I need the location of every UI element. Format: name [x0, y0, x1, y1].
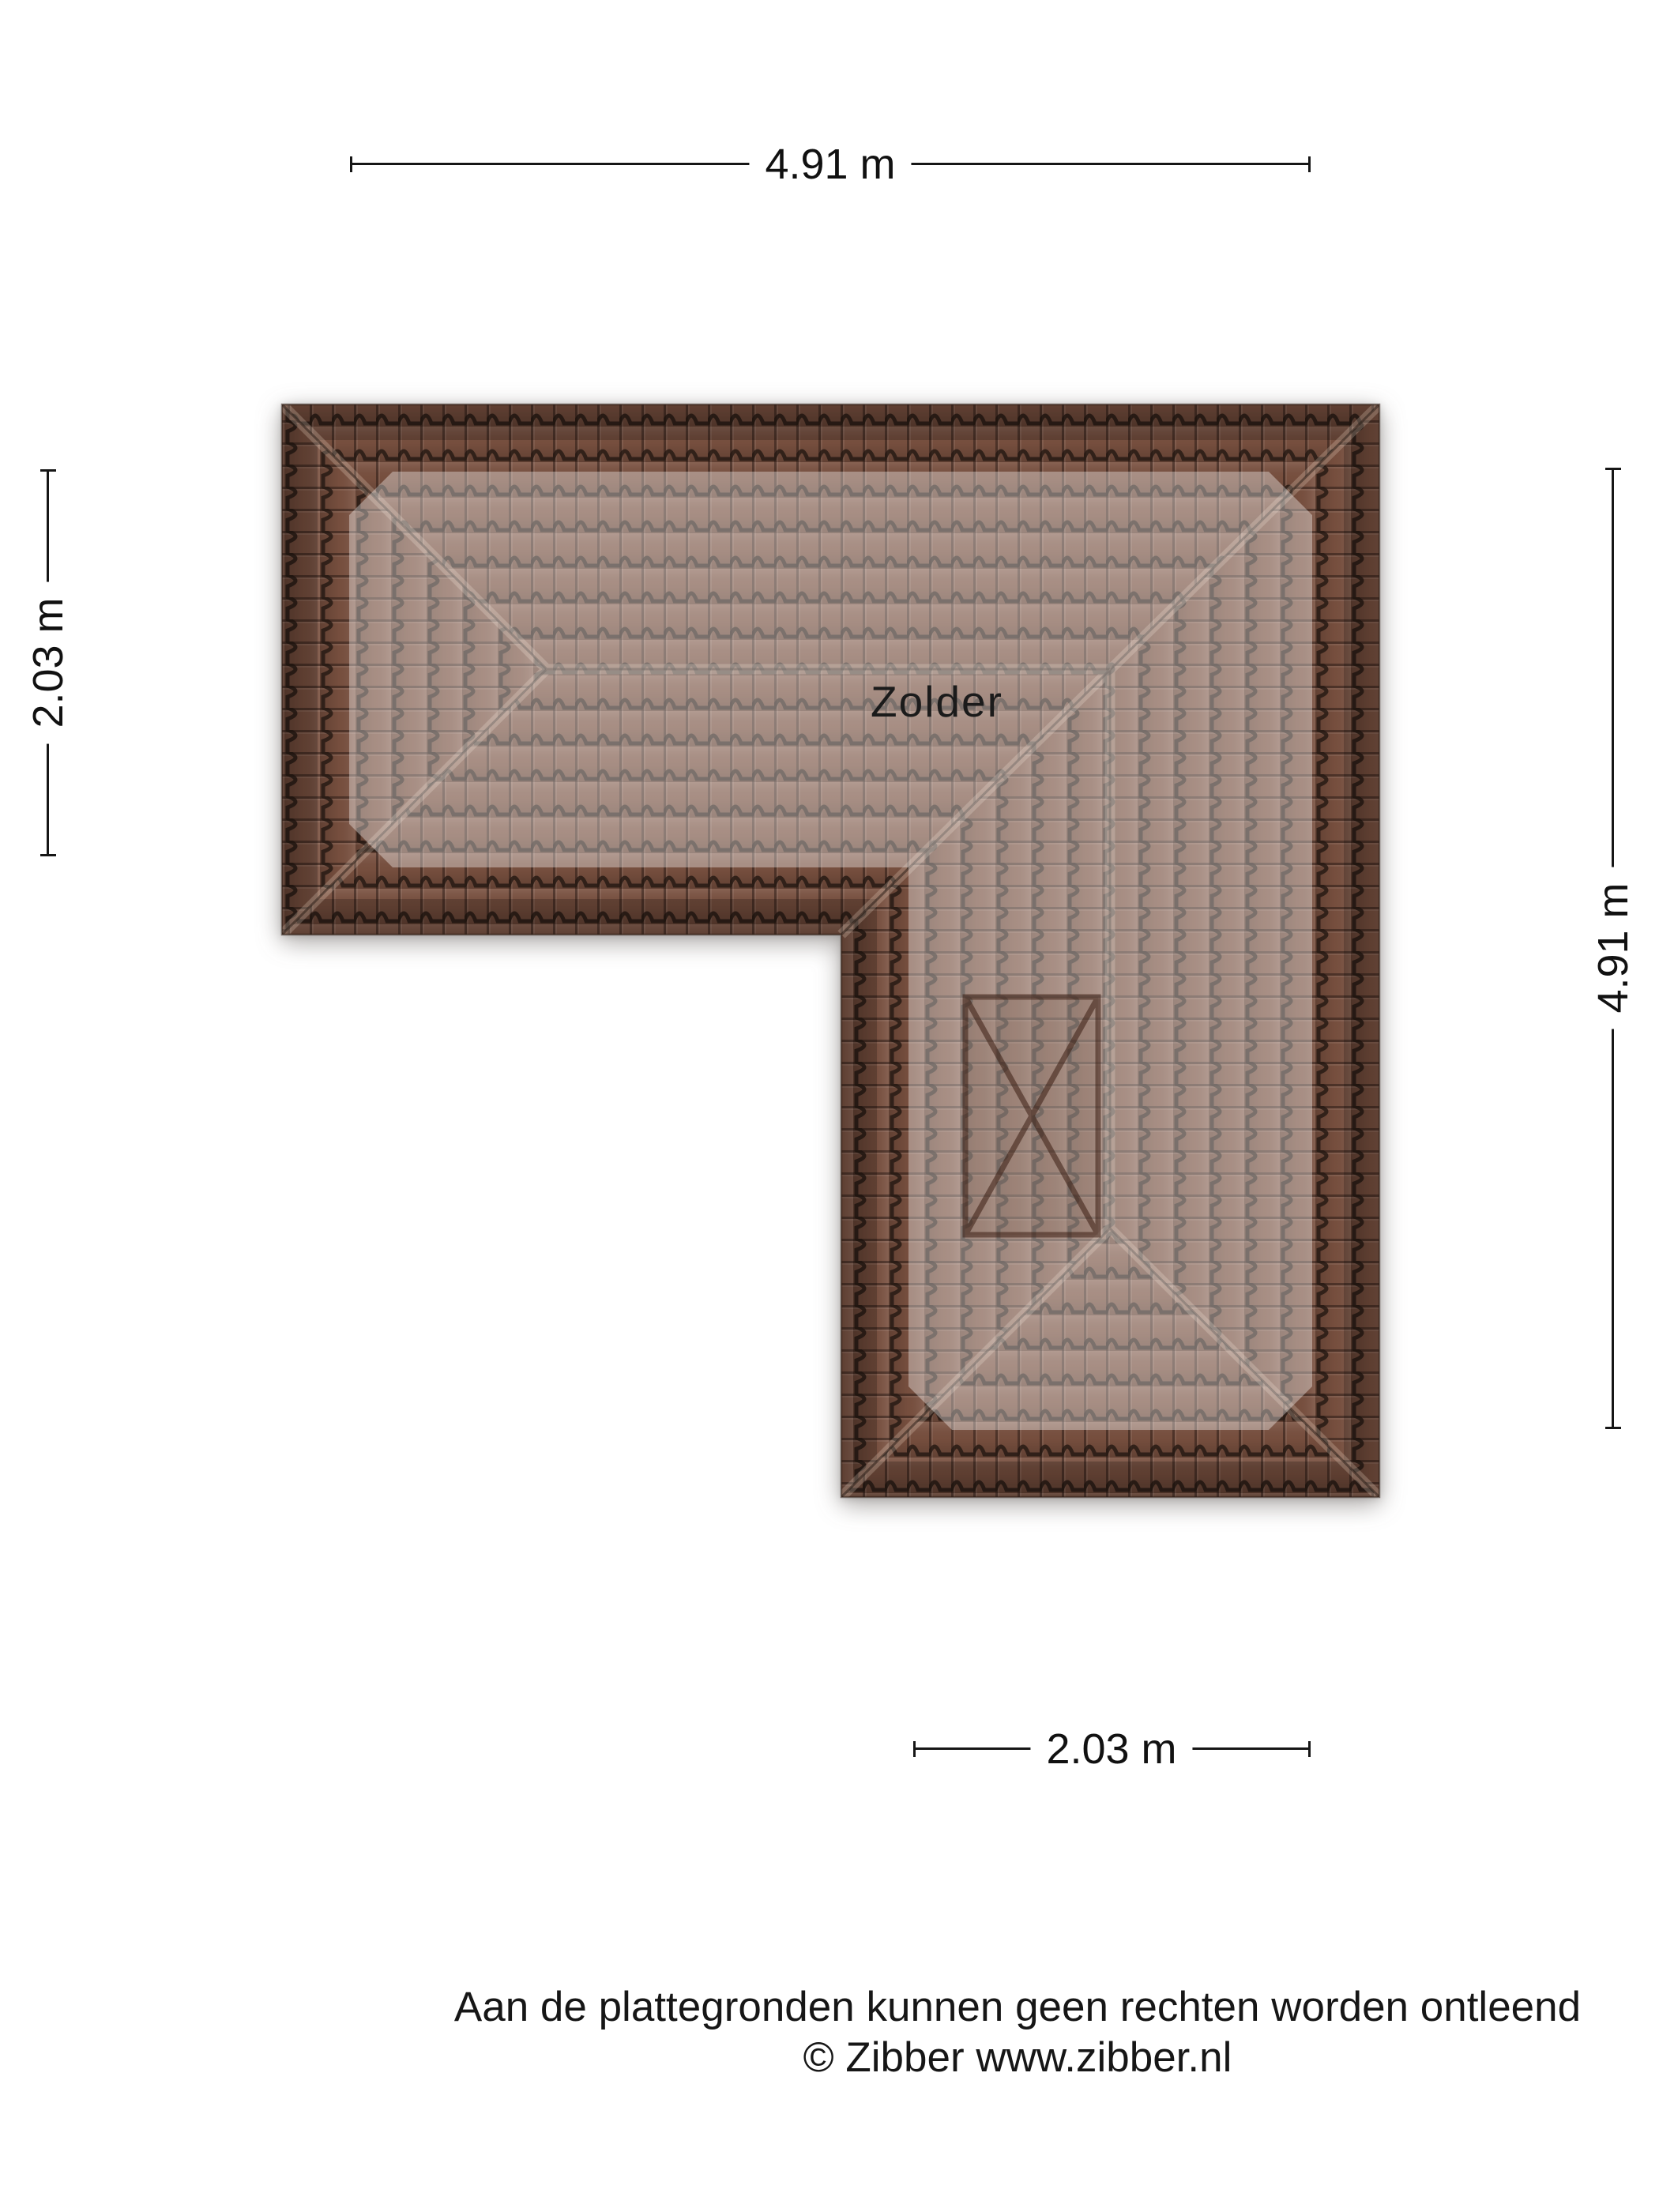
footer-line2: © Zibber www.zibber.nl	[454, 2033, 1581, 2083]
floorplan-page: Zolder 4.91 m 2.03 m 4.91 m 2.03 m Aan d…	[0, 0, 1659, 2212]
dimension-left-tick-top	[40, 469, 56, 472]
dimension-bottom: 2.03 m	[913, 1747, 1311, 1750]
dimension-left: 2.03 m	[47, 469, 49, 856]
dimension-bottom-tick-right	[1308, 1741, 1311, 1757]
dimension-right-label: 4.91 m	[1589, 867, 1638, 1029]
dimension-top-label: 4.91 m	[749, 140, 911, 189]
dimension-left-label: 2.03 m	[24, 581, 73, 743]
dimension-right-tick-bottom	[1605, 1427, 1621, 1429]
dimension-left-tick-bottom	[40, 854, 56, 856]
dimension-top-tick-left	[350, 156, 352, 172]
roof-shape	[282, 404, 1379, 1497]
room-label: Zolder	[871, 676, 1003, 727]
footer-disclaimer: Aan de plattegronden kunnen geen rechten…	[454, 1982, 1581, 2083]
footer-line1: Aan de plattegronden kunnen geen rechten…	[454, 1982, 1581, 2033]
roof-plan-drawing	[0, 0, 1659, 2212]
dimension-right-tick-top	[1605, 468, 1621, 470]
dimension-top: 4.91 m	[350, 163, 1311, 165]
dimension-right: 4.91 m	[1612, 468, 1614, 1429]
dimension-bottom-label: 2.03 m	[1030, 1725, 1192, 1774]
inner-highlight-overlay	[349, 472, 1312, 1430]
dimension-top-tick-right	[1308, 156, 1311, 172]
roof-window-marker	[965, 997, 1098, 1235]
dimension-bottom-tick-left	[913, 1741, 916, 1757]
